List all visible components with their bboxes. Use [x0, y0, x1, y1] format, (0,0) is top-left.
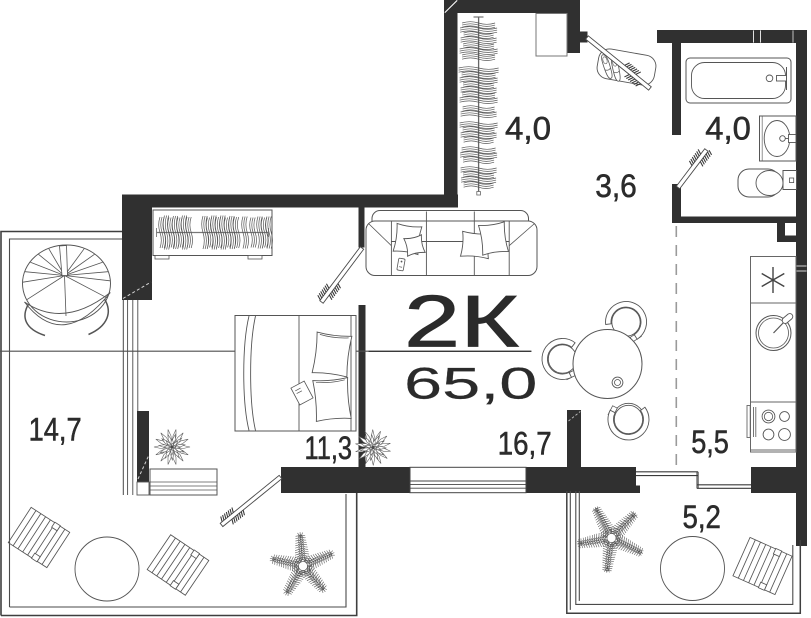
svg-text:3,6: 3,6 [595, 168, 637, 204]
svg-text:16,7: 16,7 [498, 425, 552, 461]
svg-text:2К: 2К [404, 280, 519, 363]
svg-text:5,5: 5,5 [691, 424, 729, 460]
svg-text:11,3: 11,3 [305, 430, 353, 466]
svg-text:4,0: 4,0 [505, 110, 551, 146]
svg-text:4,0: 4,0 [705, 111, 751, 147]
svg-text:5,2: 5,2 [683, 499, 721, 535]
svg-text:14,7: 14,7 [29, 411, 82, 447]
svg-text:65,0: 65,0 [404, 359, 537, 408]
